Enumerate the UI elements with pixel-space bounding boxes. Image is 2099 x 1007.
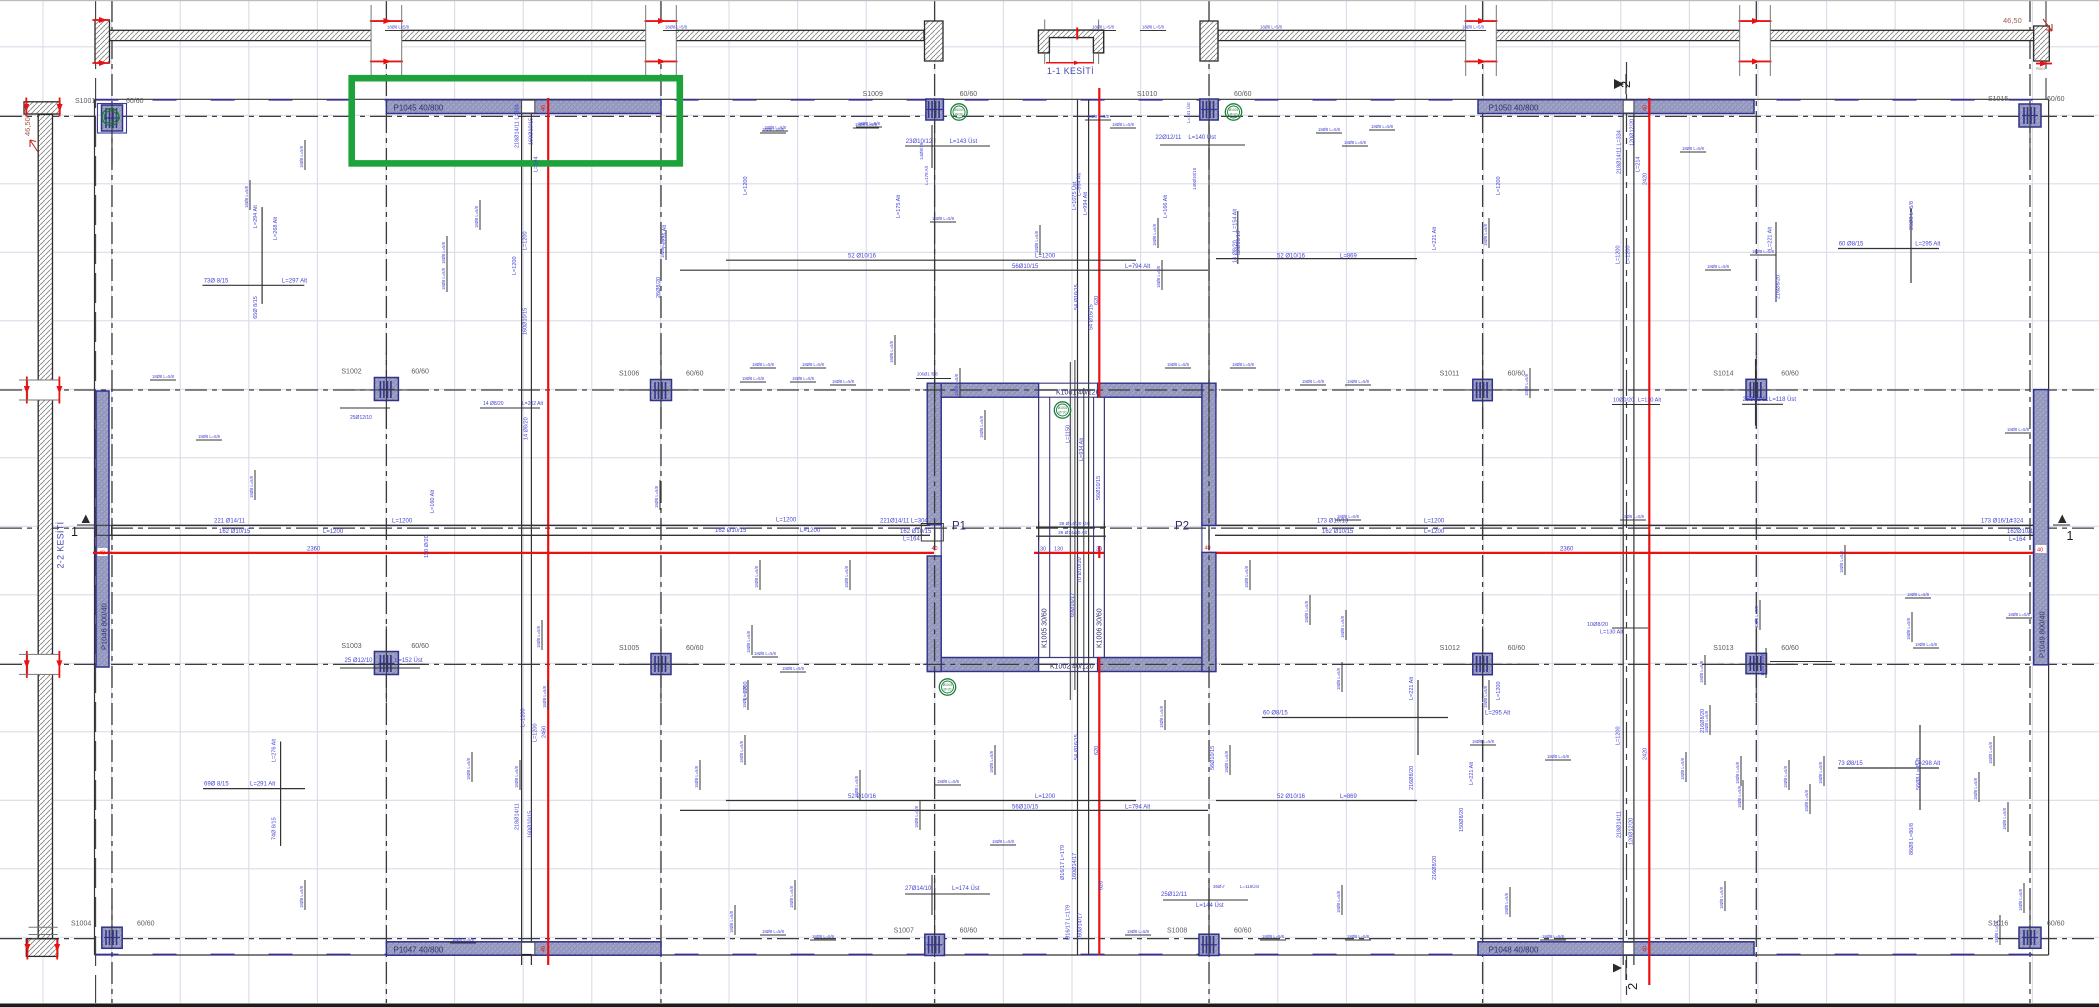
svg-text:18Ø8 L=5/8: 18Ø8 L=5/8 (1754, 605, 1759, 628)
svg-text:25 Ø12/10: 25 Ø12/10 (345, 658, 374, 664)
svg-text:60/60: 60/60 (2047, 96, 2065, 103)
svg-text:162 Ø10/15: 162 Ø10/15 (715, 528, 747, 534)
svg-text:2-2 KESİTİ: 2-2 KESİTİ (56, 521, 66, 568)
svg-text:18Ø8 L=5/8: 18Ø8 L=5/8 (1337, 514, 1360, 519)
svg-text:60/60: 60/60 (1508, 645, 1526, 652)
svg-text:Ø1001: Ø1001 (954, 108, 964, 112)
svg-text:69Ø16/17: 69Ø16/17 (1070, 593, 1076, 617)
svg-text:L=164: L=164 (2009, 537, 2027, 543)
svg-text:18Ø8 L=5/8: 18Ø8 L=5/8 (441, 241, 446, 264)
svg-text:65Ø 8/15: 65Ø 8/15 (253, 296, 259, 319)
svg-text:1: 1 (71, 525, 78, 539)
svg-text:L=1200: L=1200 (1616, 245, 1622, 264)
svg-text:39 Ø14/20 Üst: 39 Ø14/20 Üst (1059, 520, 1091, 527)
svg-text:216Ø8/20: 216Ø8/20 (1432, 856, 1438, 880)
svg-text:S1015: S1015 (1988, 96, 2008, 103)
svg-text:L=294 Alt: L=294 Alt (253, 205, 259, 229)
svg-text:18Ø8 L=5/8: 18Ø8 L=5/8 (1483, 685, 1488, 708)
svg-text:L=1200: L=1200 (1496, 176, 1502, 195)
svg-text:18Ø8 L=5/8: 18Ø8 L=5/8 (542, 685, 547, 708)
svg-text:P1049 800/40: P1049 800/40 (2038, 611, 2047, 658)
svg-text:18Ø8 L=5/8: 18Ø8 L=5/8 (1318, 127, 1341, 132)
svg-text:18Ø8 L=5/8: 18Ø8 L=5/8 (2018, 888, 2023, 911)
svg-text:P1046 800/40: P1046 800/40 (100, 603, 109, 650)
svg-text:18Ø8 L=5/8: 18Ø8 L=5/8 (249, 475, 254, 498)
svg-text:216Ø8/20: 216Ø8/20 (1409, 766, 1415, 790)
svg-text:60/60: 60/60 (960, 928, 978, 935)
svg-text:L=160 Alt: L=160 Alt (430, 489, 436, 513)
svg-text:56Ø8 L=95/8: 56Ø8 L=95/8 (1916, 758, 1922, 790)
svg-text:L=1200: L=1200 (1496, 681, 1502, 700)
svg-text:18Ø8 L=5/8: 18Ø8 L=5/8 (474, 205, 479, 228)
svg-text:25Ø12/11: 25Ø12/11 (1161, 892, 1188, 898)
svg-text:18Ø8 L=5/8: 18Ø8 L=5/8 (1804, 789, 1809, 812)
svg-text:60/60: 60/60 (1781, 645, 1799, 652)
svg-text:52Ø10/16: 52Ø10/16 (1236, 231, 1242, 255)
svg-text:218Ø14/11 L=334: 218Ø14/11 L=334 (515, 104, 521, 148)
svg-text:46,50: 46,50 (2003, 16, 2022, 25)
svg-text:1: 1 (2067, 529, 2074, 543)
svg-text:18Ø8 L=5/8: 18Ø8 L=5/8 (1244, 565, 1249, 588)
svg-text:L=324: L=324 (2007, 519, 2025, 525)
svg-text:162 Ø10/15: 162 Ø10/15 (219, 529, 251, 535)
svg-text:18Ø8 L=5/8: 18Ø8 L=5/8 (762, 929, 785, 934)
svg-text:L=1200: L=1200 (1626, 245, 1632, 264)
svg-text:160Ø10/15: 160Ø10/15 (523, 308, 529, 335)
svg-text:18Ø8 L=5/8: 18Ø8 L=5/8 (1915, 642, 1938, 647)
svg-text:18Ø8 L=5/8: 18Ø8 L=5/8 (812, 934, 835, 939)
svg-text:18Ø8 L=5/8: 18Ø8 L=5/8 (954, 373, 959, 396)
svg-text:18Ø8 L=5/8: 18Ø8 L=5/8 (1622, 514, 1645, 519)
svg-text:74Ø 8/15: 74Ø 8/15 (271, 817, 277, 840)
svg-text:18Ø8 L=5/8: 18Ø8 L=5/8 (1680, 757, 1685, 780)
svg-text:18Ø8 L=5/8: 18Ø8 L=5/8 (802, 362, 825, 367)
svg-text:27Ø14/10: 27Ø14/10 (905, 886, 932, 892)
svg-text:162 Ø10/15: 162 Ø10/15 (1322, 529, 1354, 535)
svg-text:2420: 2420 (1643, 173, 1649, 185)
svg-text:Ø16/17 L=179: Ø16/17 L=179 (1060, 845, 1066, 880)
svg-text:S1007: S1007 (894, 928, 914, 935)
svg-text:L=141 Üst: L=141 Üst (1185, 102, 1191, 123)
svg-text:73Ø 8/15: 73Ø 8/15 (204, 278, 229, 284)
svg-text:18Ø8 L=5/8: 18Ø8 L=5/8 (1302, 379, 1325, 384)
svg-text:L=143 Üst: L=143 Üst (950, 138, 978, 145)
svg-text:18Ø8 L=5/8: 18Ø8 L=5/8 (742, 376, 765, 381)
svg-text:Ø=20: Ø=20 (944, 688, 952, 692)
svg-text:18Ø8 L=5/8: 18Ø8 L=5/8 (1752, 249, 1775, 254)
svg-text:56Ø10/15: 56Ø10/15 (1012, 264, 1039, 270)
svg-text:18Ø8 L=5/8: 18Ø8 L=5/8 (1260, 25, 1283, 30)
svg-text:18Ø8 L=5/8: 18Ø8 L=5/8 (1504, 892, 1509, 915)
svg-text:22Ø12/11: 22Ø12/11 (1155, 135, 1182, 141)
svg-text:P2: P2 (1175, 521, 1189, 533)
svg-text:L=1200: L=1200 (521, 708, 527, 727)
svg-text:L=794 Alt: L=794 Alt (1125, 805, 1151, 811)
svg-text:18Ø8 L=5/8: 18Ø8 L=5/8 (1524, 373, 1529, 396)
svg-text:18Ø8 L=5/8: 18Ø8 L=5/8 (979, 415, 984, 438)
svg-text:18Ø8 L=5/8: 18Ø8 L=5/8 (854, 775, 859, 798)
svg-text:S1002: S1002 (341, 369, 361, 376)
svg-text:P1050 40/800: P1050 40/800 (1489, 104, 1539, 113)
svg-text:L=178 Alt: L=178 Alt (924, 165, 929, 185)
svg-text:18Ø8 L=5/8: 18Ø8 L=5/8 (1142, 25, 1165, 30)
svg-text:60/60: 60/60 (411, 643, 429, 650)
svg-text:14 Ø8/20: 14 Ø8/20 (483, 401, 504, 407)
svg-text:73 Ø8/15: 73 Ø8/15 (1838, 761, 1863, 767)
svg-text:S1010: S1010 (1137, 91, 1157, 98)
svg-text:P1048 40/800: P1048 40/800 (1489, 946, 1539, 955)
svg-text:56Ø10/15: 56Ø10/15 (1096, 476, 1102, 500)
svg-text:18Ø8 L=5/8: 18Ø8 L=5/8 (654, 485, 659, 508)
svg-text:2: 2 (1625, 983, 1640, 990)
svg-text:26Ø8 L=5/8: 26Ø8 L=5/8 (1909, 201, 1915, 230)
svg-text:K1002 40/120: K1002 40/120 (1050, 664, 1094, 671)
svg-text:18Ø8 L=5/8: 18Ø8 L=5/8 (1127, 929, 1150, 934)
svg-text:30: 30 (1040, 547, 1046, 553)
svg-text:56Ø10/15: 56Ø10/15 (1012, 805, 1039, 811)
svg-text:10Ø0/20: 10Ø0/20 (1613, 398, 1634, 404)
svg-text:18Ø8 L=5/8: 18Ø8 L=5/8 (1034, 230, 1039, 253)
svg-text:620: 620 (1099, 881, 1105, 890)
svg-text:60/60: 60/60 (137, 921, 155, 928)
svg-text:L=120 Alt: L=120 Alt (1638, 398, 1662, 404)
svg-text:18Ø8 L=5/8: 18Ø8 L=5/8 (1167, 362, 1190, 367)
svg-text:160Ø14/17: 160Ø14/17 (1078, 913, 1084, 940)
svg-text:18Ø8 L=5/8: 18Ø8 L=5/8 (1719, 886, 1724, 909)
svg-text:Ø=20: Ø=20 (1230, 113, 1238, 117)
svg-text:K1001 40/120: K1001 40/120 (1056, 390, 1100, 397)
svg-text:18Ø8 L=5/8: 18Ø8 L=5/8 (932, 216, 955, 221)
svg-text:18Ø8 L=5/8: 18Ø8 L=5/8 (782, 666, 805, 671)
svg-text:L=166 Alt: L=166 Alt (1163, 194, 1169, 218)
svg-text:39 Ø14/20 Alt: 39 Ø14/20 Alt (1058, 530, 1088, 536)
svg-text:18Ø8 L=5/8: 18Ø8 L=5/8 (441, 267, 446, 290)
svg-text:18Ø8 L=5/8: 18Ø8 L=5/8 (1304, 600, 1309, 623)
svg-text:86Ø8 L=80/8: 86Ø8 L=80/8 (1909, 823, 1915, 855)
svg-text:18Ø8 L=5/8: 18Ø8 L=5/8 (1347, 379, 1370, 384)
svg-text:18Ø8 L=5/8: 18Ø8 L=5/8 (152, 374, 175, 379)
svg-text:S1012: S1012 (1440, 645, 1460, 652)
svg-text:14 Ø8/20: 14 Ø8/20 (524, 417, 530, 440)
svg-text:L=221 Alt: L=221 Alt (1768, 226, 1774, 250)
svg-text:L=144 Üst: L=144 Üst (1196, 902, 1224, 909)
svg-text:18Ø8 L=5/8: 18Ø8 L=5/8 (752, 362, 775, 367)
svg-text:L=1200: L=1200 (1035, 254, 1056, 260)
svg-text:18Ø8 L=5/8: 18Ø8 L=5/8 (1087, 114, 1110, 119)
svg-text:18Ø8 L=5/8: 18Ø8 L=5/8 (1542, 934, 1565, 939)
svg-text:18Ø8 L=5/8: 18Ø8 L=5/8 (989, 750, 994, 773)
svg-text:18Ø8 L=5/8: 18Ø8 L=5/8 (452, 937, 475, 942)
svg-text:L=221 Alt: L=221 Alt (1409, 676, 1415, 700)
svg-text:L=869: L=869 (1340, 794, 1358, 800)
svg-text:52 Ø10/16: 52 Ø10/16 (1277, 794, 1306, 800)
svg-text:18Ø8 L=5/8: 18Ø8 L=5/8 (387, 25, 410, 30)
svg-text:1-1 KESİTİ: 1-1 KESİTİ (1047, 66, 1094, 76)
svg-text:40: 40 (1205, 546, 1211, 552)
svg-text:L=140 Üst: L=140 Üst (1188, 134, 1216, 141)
svg-text:S1001: S1001 (75, 98, 95, 105)
svg-text:L=202 Alt: L=202 Alt (522, 401, 544, 407)
svg-text:P1: P1 (952, 521, 966, 533)
svg-text:18Ø8 L=5/8: 18Ø8 L=5/8 (244, 185, 249, 208)
svg-text:Ø1001: Ø1001 (1229, 108, 1239, 112)
svg-text:54 Ø16/15: 54 Ø16/15 (1074, 284, 1080, 310)
svg-text:L=1200: L=1200 (1035, 794, 1056, 800)
svg-text:18Ø8 L=5/8: 18Ø8 L=5/8 (514, 765, 519, 788)
svg-text:162Ø10/15: 162Ø10/15 (2007, 529, 2037, 535)
svg-text:L=175 Alt: L=175 Alt (896, 194, 902, 218)
svg-text:L=297 Alt: L=297 Alt (282, 278, 308, 284)
svg-text:216Ø8/20: 216Ø8/20 (1700, 709, 1706, 733)
svg-text:140Ø10/10: 140Ø10/10 (1192, 167, 1197, 190)
svg-text:18Ø8 L=5/8: 18Ø8 L=5/8 (1707, 264, 1730, 269)
svg-text:S1006: S1006 (619, 371, 639, 378)
svg-text:S1003: S1003 (341, 643, 361, 650)
svg-text:218Ø14/11: 218Ø14/11 (1617, 811, 1623, 838)
svg-text:130: 130 (1054, 547, 1063, 553)
svg-text:18Ø8 L=5/8: 18Ø8 L=5/8 (466, 757, 471, 780)
svg-text:L=794 Alt: L=794 Alt (1125, 264, 1151, 270)
svg-text:18Ø8 L=5/8: 18Ø8 L=5/8 (198, 434, 221, 439)
svg-text:L=1200: L=1200 (776, 518, 797, 524)
svg-text:18Ø8 L=5/8: 18Ø8 L=5/8 (1159, 705, 1164, 728)
svg-text:18Ø8 L=5/8: 18Ø8 L=5/8 (792, 376, 815, 381)
svg-text:L=1200: L=1200 (392, 519, 413, 525)
svg-text:L=118 Üst: L=118 Üst (1769, 396, 1796, 403)
svg-text:60/60: 60/60 (1781, 371, 1799, 378)
svg-text:Ø1001: Ø1001 (1058, 406, 1068, 410)
svg-text:60/60: 60/60 (686, 371, 704, 378)
svg-text:18Ø8 L=5/8: 18Ø8 L=5/8 (1735, 761, 1740, 784)
svg-text:18Ø8 L=5/8: 18Ø8 L=5/8 (1262, 934, 1285, 939)
svg-text:18Ø8 L=5/8: 18Ø8 L=5/8 (2008, 612, 2031, 617)
svg-text:18Ø8 L=5/8: 18Ø8 L=5/8 (764, 125, 787, 130)
svg-text:L=1200: L=1200 (1616, 726, 1622, 745)
svg-text:18Ø8 L=5/8: 18Ø8 L=5/8 (1699, 660, 1704, 683)
svg-text:18Ø8 L=5/8: 18Ø8 L=5/8 (1340, 615, 1345, 638)
svg-text:52 Ø10/16: 52 Ø10/16 (848, 794, 877, 800)
svg-text:2360: 2360 (1560, 547, 1574, 553)
svg-text:60 Ø8/15: 60 Ø8/15 (1263, 711, 1288, 717)
svg-text:18Ø8 L=5/8: 18Ø8 L=5/8 (746, 630, 751, 653)
svg-text:120Ø12/20: 120Ø12/20 (1629, 818, 1635, 845)
svg-text:L=1200: L=1200 (512, 256, 518, 275)
svg-text:18Ø8 L=5/8: 18Ø8 L=5/8 (1783, 765, 1788, 788)
svg-text:P1047 40/800: P1047 40/800 (394, 946, 444, 955)
svg-text:36Ø ⁄⁄: 36Ø ⁄⁄ (1213, 884, 1226, 889)
svg-text:69Ø 8/15: 69Ø 8/15 (204, 782, 229, 788)
svg-text:18Ø8 L=5/8: 18Ø8 L=5/8 (1347, 934, 1370, 939)
svg-text:52 Ø10/16: 52 Ø10/16 (848, 254, 877, 260)
svg-text:60/60: 60/60 (126, 98, 144, 105)
svg-text:18Ø8 L=5/8: 18Ø8 L=5/8 (536, 625, 541, 648)
svg-text:L=291 Alt: L=291 Alt (250, 782, 276, 788)
svg-text:L=869: L=869 (1340, 254, 1358, 260)
svg-text:26Ø8/20: 26Ø8/20 (656, 277, 662, 298)
svg-text:18Ø8 L=5/8: 18Ø8 L=5/8 (1336, 667, 1341, 690)
svg-text:56Ø10/15: 56Ø10/15 (1210, 746, 1216, 770)
svg-text:10Ø8/20: 10Ø8/20 (1587, 622, 1608, 628)
svg-text:60/60: 60/60 (1508, 371, 1526, 378)
svg-text:18Ø8 L=5/8: 18Ø8 L=5/8 (694, 765, 699, 788)
svg-text:L=226 Alt: L=226 Alt (662, 224, 668, 248)
svg-text:L=194: L=194 (534, 157, 540, 172)
svg-text:40: 40 (541, 105, 547, 111)
svg-text:18Ø8 L=5/8: 18Ø8 L=5/8 (1973, 777, 1978, 800)
svg-text:L=1200: L=1200 (1424, 519, 1445, 525)
svg-text:160Ø10/15: 160Ø10/15 (529, 118, 535, 145)
svg-text:K1006 30/60: K1006 30/60 (1097, 608, 1104, 648)
svg-text:2420: 2420 (1643, 748, 1649, 760)
svg-text:L=221 Alt: L=221 Alt (1432, 226, 1438, 250)
svg-text:18Ø8 L=5/8: 18Ø8 L=5/8 (1344, 140, 1367, 145)
svg-text:206Ø1 /5/8: 206Ø1 /5/8 (917, 372, 938, 377)
svg-text:L=994 Alt: L=994 Alt (1083, 191, 1089, 215)
svg-text:40: 40 (541, 946, 547, 952)
svg-text:218Ø14/11 L=334: 218Ø14/11 L=334 (1617, 130, 1623, 174)
svg-text:18Ø8 L=5/8: 18Ø8 L=5/8 (1336, 890, 1341, 913)
svg-text:54 Ø16/15: 54 Ø16/15 (1089, 304, 1095, 330)
svg-text:18Ø8 L=5/8: 18Ø8 L=5/8 (1682, 146, 1705, 151)
svg-text:18Ø8 L=5/8: 18Ø8 L=5/8 (1737, 785, 1742, 808)
svg-text:18Ø8 L=5/8: 18Ø8 L=5/8 (789, 885, 794, 908)
svg-text:18Ø8 L=5/8: 18Ø8 L=5/8 (2007, 427, 2030, 432)
svg-text:40: 40 (1642, 946, 1648, 952)
svg-text:18Ø8 L=5/8: 18Ø8 L=5/8 (1371, 124, 1394, 129)
svg-text:18Ø8 L=5/8: 18Ø8 L=5/8 (914, 805, 919, 828)
svg-text:L=174 Üst: L=174 Üst (952, 885, 980, 892)
svg-text:L=130 Alt: L=130 Alt (1600, 630, 1624, 636)
svg-text:40: 40 (1642, 105, 1648, 111)
svg-text:L=1200: L=1200 (1424, 529, 1445, 535)
svg-text:P5001: P5001 (2036, 67, 2045, 71)
svg-text:150 Ø/20: 150 Ø/20 (424, 535, 430, 558)
svg-text:216Ø8/20: 216Ø8/20 (1776, 275, 1782, 299)
svg-text:60/60: 60/60 (686, 645, 704, 652)
svg-text:18Ø8 L=5/8: 18Ø8 L=5/8 (844, 565, 849, 588)
svg-text:S1008: S1008 (1167, 928, 1187, 935)
svg-text:L=268 Alt: L=268 Alt (273, 216, 279, 240)
svg-text:18Ø8 L=5/8: 18Ø8 L=5/8 (1224, 750, 1229, 773)
svg-text:18Ø8 L=5/8: 18Ø8 L=5/8 (1472, 739, 1495, 744)
svg-text:18Ø8 L=5/8: 18Ø8 L=5/8 (1547, 754, 1570, 759)
svg-text:18Ø8 L=5/8: 18Ø8 L=5/8 (1906, 617, 1911, 640)
svg-text:L=221 Alt: L=221 Alt (1469, 761, 1475, 785)
svg-text:18Ø8 L=5/8: 18Ø8 L=5/8 (1483, 223, 1488, 246)
svg-text:L=934 Alt: L=934 Alt (1079, 437, 1085, 461)
svg-text:L=864 Alt: L=864 Alt (1077, 172, 1083, 196)
svg-text:L=1200: L=1200 (800, 528, 821, 534)
svg-text:2: 2 (1618, 81, 1633, 88)
svg-text:2460: 2460 (542, 726, 548, 738)
svg-text:S1011: S1011 (1440, 371, 1460, 378)
svg-text:L=164: L=164 (903, 537, 921, 543)
svg-text:18Ø8 L=5/8: 18Ø8 L=5/8 (299, 145, 304, 168)
svg-text:18Ø8 L=5/8: 18Ø8 L=5/8 (739, 740, 744, 763)
svg-text:14Ø8/19: 14Ø8/19 (919, 142, 924, 160)
svg-text:60/60: 60/60 (1234, 928, 1252, 935)
svg-text:18Ø8 L=5/8: 18Ø8 L=5/8 (754, 565, 759, 588)
svg-text:40: 40 (2037, 548, 2043, 554)
svg-text:S1004: S1004 (71, 921, 91, 928)
svg-text:160Ø14/17: 160Ø14/17 (1072, 853, 1078, 880)
svg-text:620: 620 (1094, 746, 1100, 755)
svg-text:18Ø8 L=5/8: 18Ø8 L=5/8 (832, 379, 855, 384)
svg-text:30: 30 (1096, 547, 1102, 553)
svg-text:70 Ø10/20: 70 Ø10/20 (1077, 557, 1083, 583)
svg-text:18Ø8 L=5/8: 18Ø8 L=5/8 (1839, 550, 1844, 573)
svg-text:18Ø8 L=5/8: 18Ø8 L=5/8 (1907, 592, 1930, 597)
svg-text:18Ø8 L=5/8: 18Ø8 L=5/8 (937, 779, 960, 784)
svg-text:L=295 Alt: L=295 Alt (1485, 711, 1511, 717)
svg-text:S1013: S1013 (1713, 645, 1733, 652)
svg-text:18Ø8 L=5/8: 18Ø8 L=5/8 (1232, 362, 1255, 367)
svg-text:60/60: 60/60 (1234, 91, 1252, 98)
svg-text:18Ø8 L=5/8: 18Ø8 L=5/8 (729, 910, 734, 933)
svg-text:S1014: S1014 (1713, 371, 1733, 378)
svg-text:L=1200: L=1200 (743, 176, 749, 195)
svg-text:L=1200: L=1200 (743, 681, 749, 700)
svg-text:620: 620 (1094, 296, 1100, 305)
svg-text:60/60: 60/60 (411, 369, 429, 376)
svg-text:18Ø8 L=5/8: 18Ø8 L=5/8 (1156, 265, 1161, 288)
svg-text:18Ø8 L=5/8: 18Ø8 L=5/8 (1818, 761, 1823, 784)
svg-text:L=1200: L=1200 (323, 529, 344, 535)
svg-text:120Ø12/20: 120Ø12/20 (1630, 119, 1636, 146)
svg-text:18Ø8 L=5/8: 18Ø8 L=5/8 (1152, 223, 1157, 246)
svg-text:Ø=20: Ø=20 (955, 113, 963, 117)
svg-text:18Ø8 L=5/8: 18Ø8 L=5/8 (1462, 25, 1485, 30)
svg-text:18Ø8 L=5/8: 18Ø8 L=5/8 (1988, 741, 1993, 764)
svg-text:18Ø8 L=5/8: 18Ø8 L=5/8 (1092, 25, 1115, 30)
svg-text:L=295 Alt: L=295 Alt (1915, 242, 1941, 248)
svg-text:S1009: S1009 (863, 91, 883, 98)
svg-text:60/60: 60/60 (2047, 921, 2065, 928)
svg-text:L=1200: L=1200 (523, 231, 529, 250)
svg-text:L=276 Alt: L=276 Alt (271, 738, 277, 762)
svg-text:46,50: 46,50 (23, 117, 32, 136)
svg-text:162 Ø10/15: 162 Ø10/15 (900, 529, 932, 535)
svg-text:K1005 30/60: K1005 30/60 (1042, 608, 1049, 648)
svg-text:173 Ø10/13: 173 Ø10/13 (1317, 519, 1349, 525)
svg-text:L=152 Üst: L=152 Üst (395, 657, 423, 664)
svg-text:Ø=20: Ø=20 (1059, 411, 1067, 415)
svg-text:18Ø8 L=5/8: 18Ø8 L=5/8 (1994, 920, 1999, 943)
svg-text:L=1200: L=1200 (533, 723, 539, 742)
svg-text:Ø1001: Ø1001 (943, 683, 953, 687)
svg-text:18Ø8 L=5/8: 18Ø8 L=5/8 (889, 340, 894, 363)
svg-text:150Ø8/20: 150Ø8/20 (1459, 808, 1465, 832)
svg-text:160Ø10/15: 160Ø10/15 (528, 811, 534, 838)
svg-text:18Ø8 L=5/8: 18Ø8 L=5/8 (858, 121, 881, 126)
svg-text:L=154 Alt: L=154 Alt (1233, 208, 1239, 232)
svg-text:L=1150: L=1150 (1066, 425, 1072, 443)
svg-text:L=116Üst: L=116Üst (1240, 883, 1260, 889)
svg-text:2360: 2360 (307, 547, 321, 553)
svg-text:18Ø8 L=5/8: 18Ø8 L=5/8 (1112, 122, 1135, 127)
svg-text:L=214: L=214 (1636, 157, 1642, 172)
svg-text:54 Ø16/15: 54 Ø16/15 (1074, 734, 1080, 760)
svg-text:P1045 40/800: P1045 40/800 (394, 104, 444, 113)
svg-text:18Ø8 L=5/8: 18Ø8 L=5/8 (2002, 807, 2007, 830)
svg-text:60/60: 60/60 (960, 91, 978, 98)
svg-text:221 Ø14/11: 221 Ø14/11 (214, 519, 246, 525)
svg-text:60 Ø8/15: 60 Ø8/15 (1839, 242, 1864, 248)
svg-text:18Ø8 L=5/8: 18Ø8 L=5/8 (754, 651, 777, 656)
svg-text:18Ø8 L=5/8: 18Ø8 L=5/8 (992, 839, 1015, 844)
svg-text:18Ø8 L=5/8: 18Ø8 L=5/8 (299, 885, 304, 908)
svg-text:25Ø12/10: 25Ø12/10 (350, 415, 372, 421)
